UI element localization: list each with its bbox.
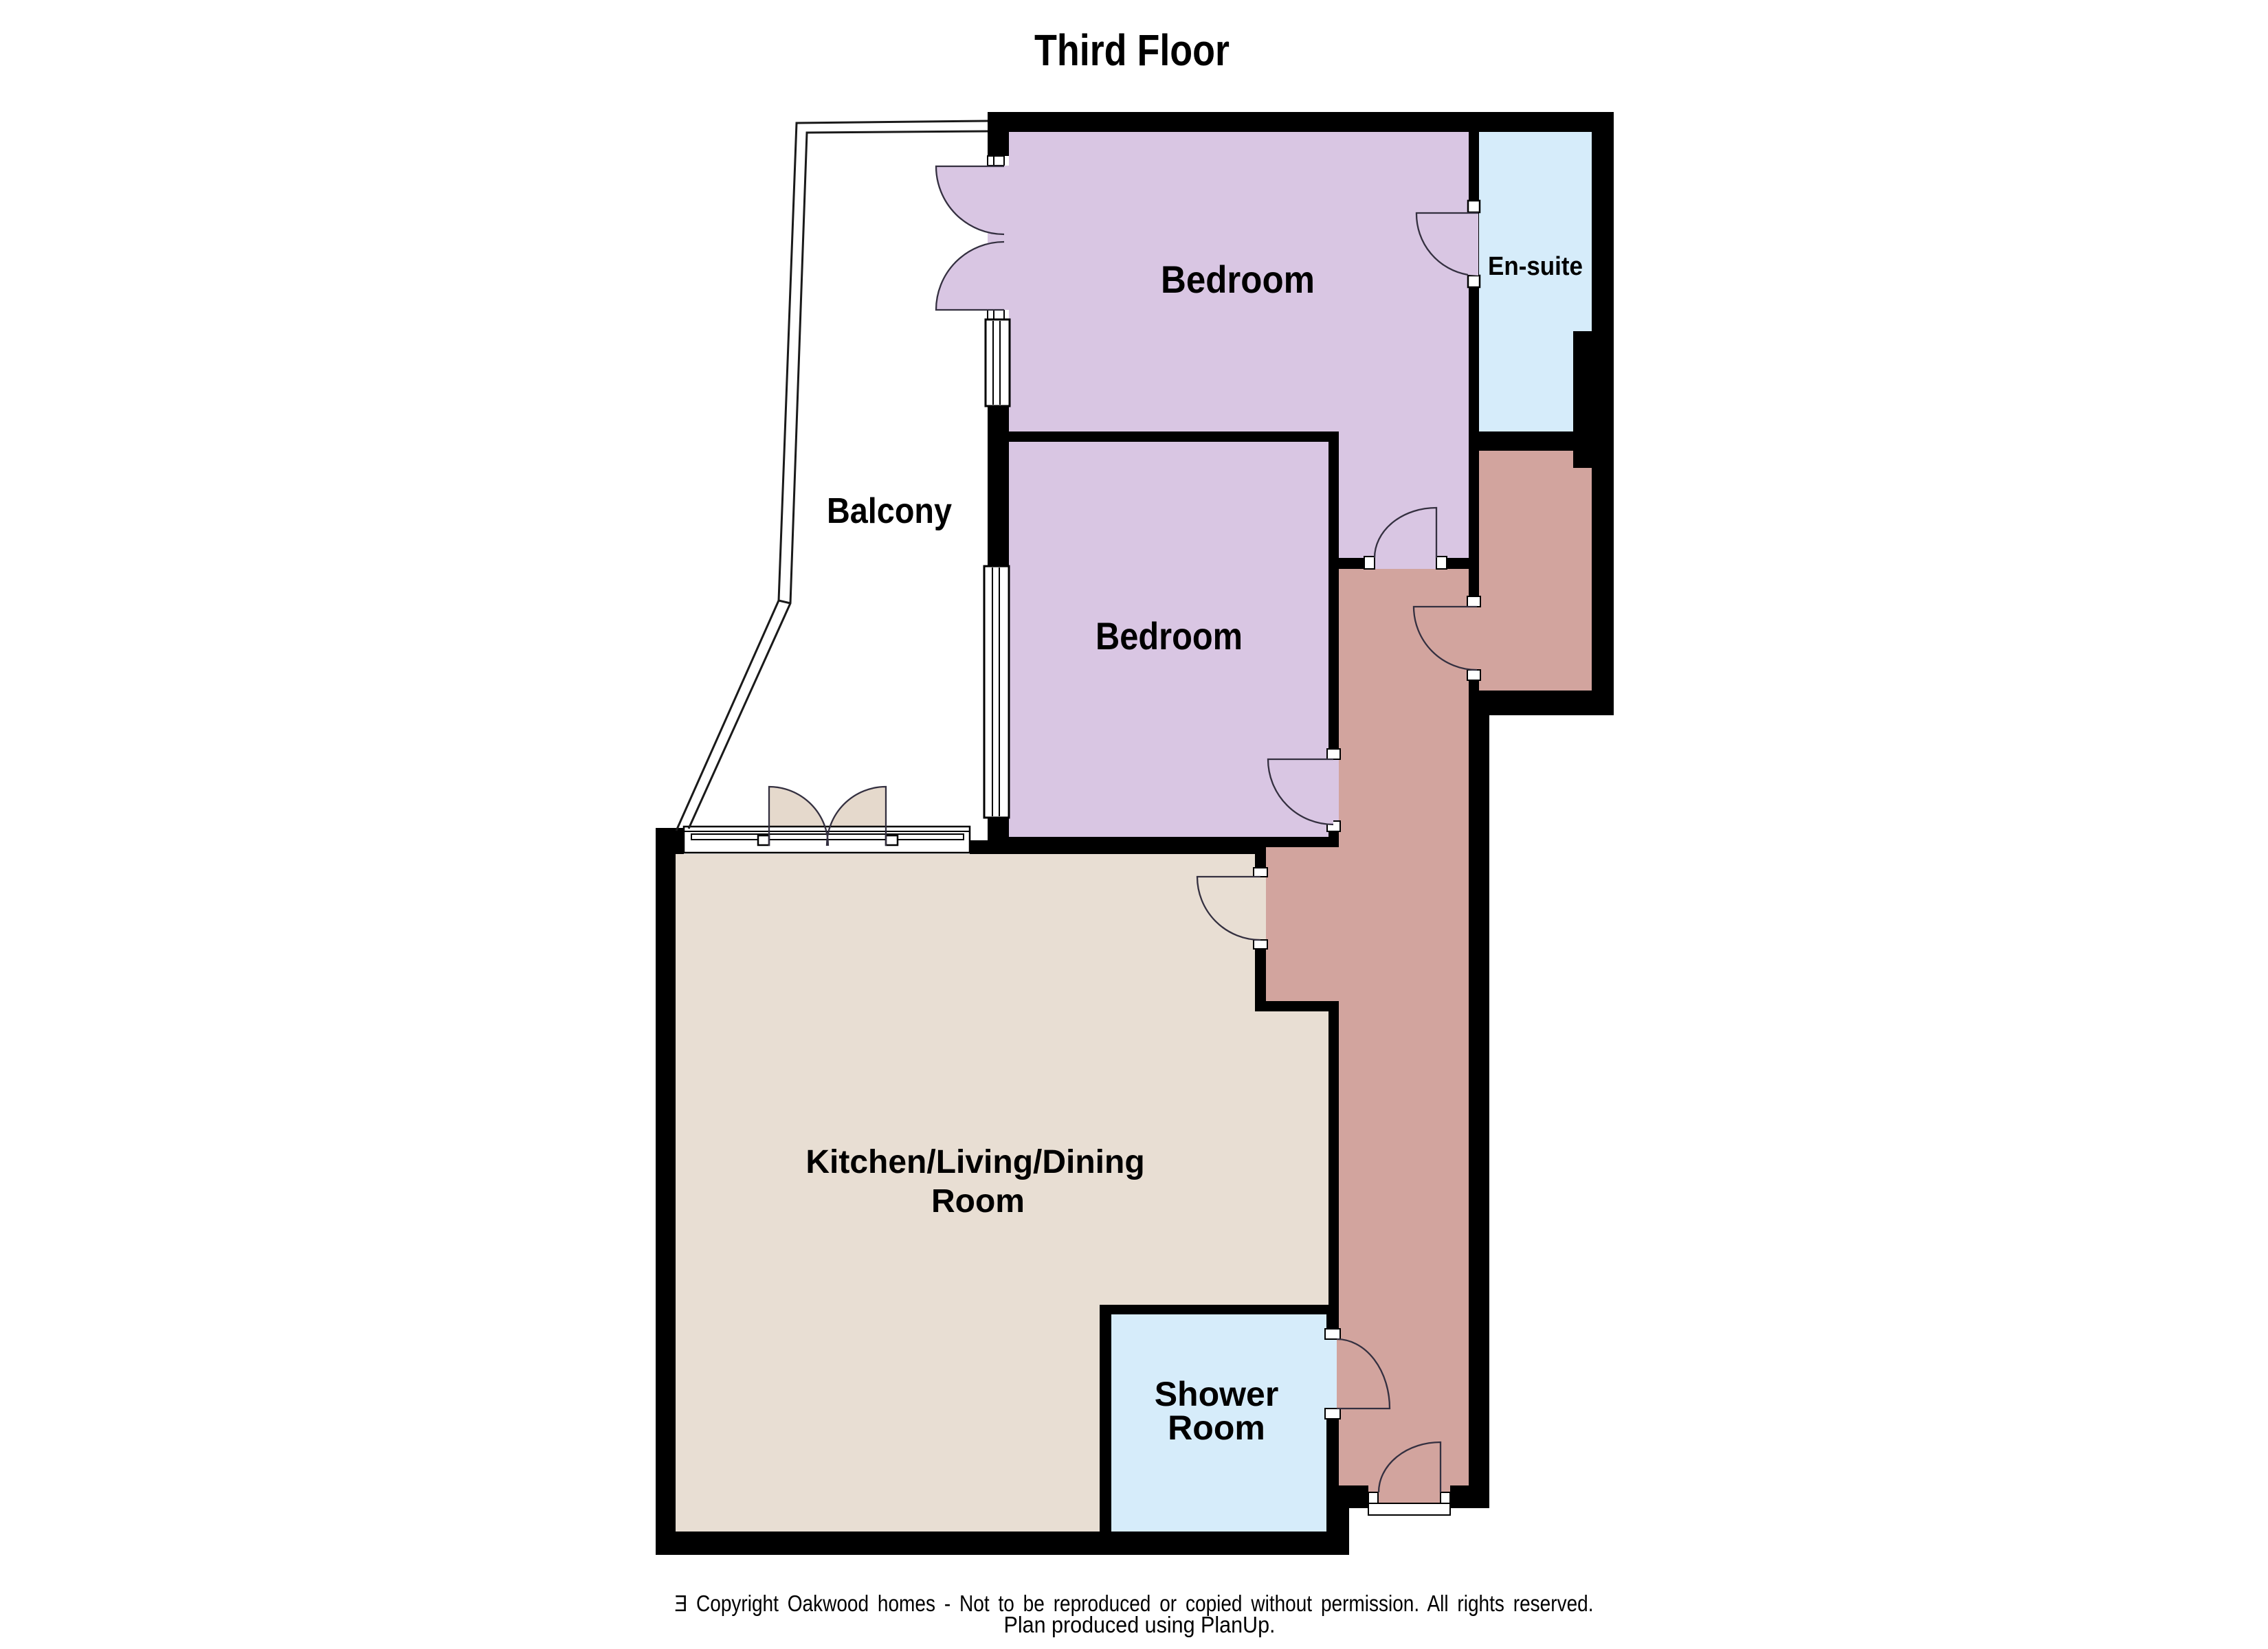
svg-text:Third Floor: Third Floor	[1034, 25, 1230, 75]
svg-text:Room: Room	[931, 1183, 1025, 1220]
svg-text:Balcony: Balcony	[827, 491, 952, 531]
svg-text:Shower: Shower	[1155, 1375, 1279, 1413]
svg-text:Room: Room	[1168, 1409, 1265, 1447]
svg-text:Plan produced using PlanUp.: Plan produced using PlanUp.	[1004, 1612, 1276, 1637]
svg-text:Kitchen/Living/Dining: Kitchen/Living/Dining	[805, 1144, 1144, 1180]
svg-text:Bedroom: Bedroom	[1096, 614, 1243, 658]
svg-text:En-suite: En-suite	[1488, 252, 1583, 281]
svg-text:Bedroom: Bedroom	[1161, 258, 1315, 301]
